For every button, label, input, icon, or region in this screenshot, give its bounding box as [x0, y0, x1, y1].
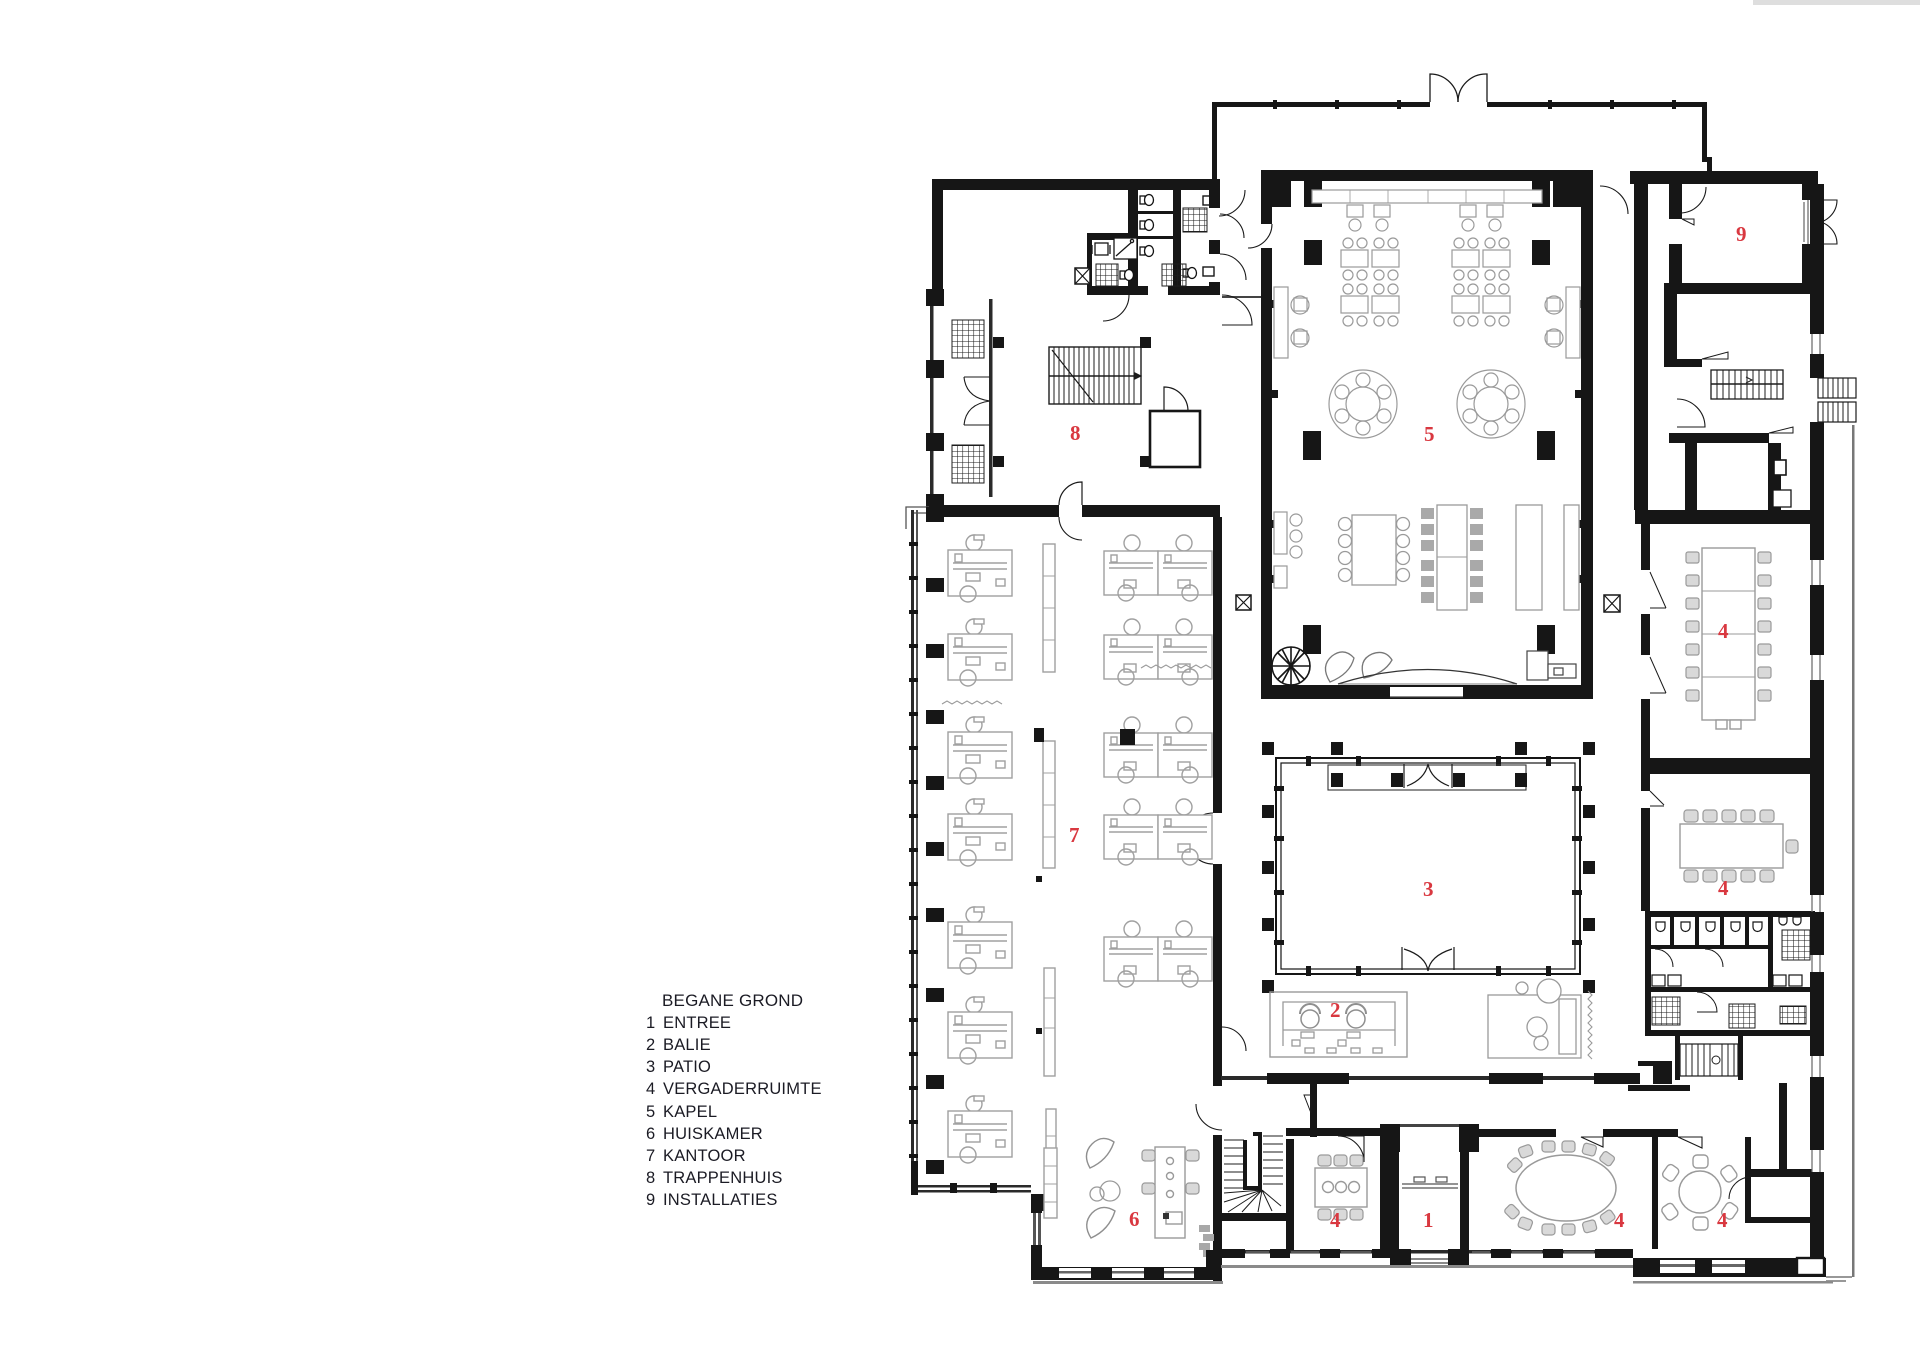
svg-text:4: 4	[1718, 876, 1729, 900]
svg-text:INSTALLATIES: INSTALLATIES	[663, 1191, 778, 1209]
svg-text:8: 8	[646, 1169, 655, 1187]
svg-text:BALIE: BALIE	[663, 1036, 711, 1054]
svg-text:1: 1	[646, 1014, 655, 1032]
svg-text:ENTREE: ENTREE	[663, 1014, 731, 1032]
svg-text:2: 2	[1330, 998, 1341, 1022]
svg-text:5: 5	[646, 1103, 655, 1121]
svg-text:9: 9	[1736, 222, 1747, 246]
svg-text:1: 1	[1423, 1208, 1434, 1232]
svg-text:VERGADERRUIMTE: VERGADERRUIMTE	[663, 1080, 822, 1098]
svg-text:3: 3	[1423, 877, 1434, 901]
svg-text:4: 4	[646, 1080, 655, 1098]
svg-text:9: 9	[646, 1191, 655, 1209]
svg-text:4: 4	[1614, 1208, 1625, 1232]
svg-text:2: 2	[646, 1036, 655, 1054]
svg-text:6: 6	[1129, 1207, 1140, 1231]
svg-text:PATIO: PATIO	[663, 1058, 711, 1076]
svg-text:7: 7	[1069, 823, 1080, 847]
svg-text:4: 4	[1330, 1208, 1341, 1232]
svg-text:KAPEL: KAPEL	[663, 1103, 717, 1121]
svg-text:7: 7	[646, 1147, 655, 1165]
svg-text:6: 6	[646, 1125, 655, 1143]
svg-text:4: 4	[1718, 619, 1729, 643]
svg-text:4: 4	[1717, 1208, 1728, 1232]
svg-text:8: 8	[1070, 421, 1081, 445]
svg-text:TRAPPENHUIS: TRAPPENHUIS	[663, 1169, 783, 1187]
svg-text:5: 5	[1424, 422, 1435, 446]
svg-text:3: 3	[646, 1058, 655, 1076]
svg-text:HUISKAMER: HUISKAMER	[663, 1125, 763, 1143]
svg-text:BEGANE GROND: BEGANE GROND	[662, 991, 803, 1010]
svg-text:KANTOOR: KANTOOR	[663, 1147, 746, 1165]
